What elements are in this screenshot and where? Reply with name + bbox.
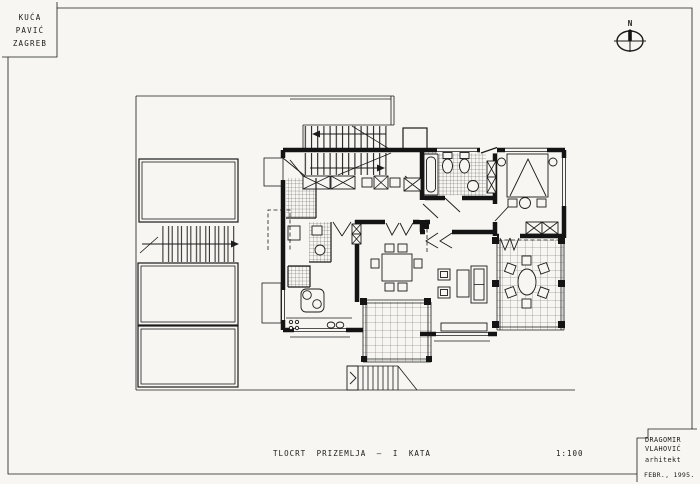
nightstand-left — [498, 158, 506, 166]
architect-name-1: DRAGOMIR — [645, 436, 681, 444]
floor-plan-drawing: KUĆA PAVIĆ ZAGREB DRAGOMIR VLAHOVIĆ arhi… — [0, 0, 700, 484]
architect-date: FEBR., 1995. — [644, 471, 695, 479]
pantry-floor — [288, 266, 310, 287]
architect-name-2: VLAHOVIĆ — [645, 444, 681, 453]
toilet — [460, 159, 470, 173]
drawing-sheet: KUĆA PAVIĆ ZAGREB DRAGOMIR VLAHOVIĆ arhi… — [0, 0, 700, 484]
terrace-table — [518, 269, 536, 295]
coffee-table — [457, 270, 469, 297]
sink — [443, 159, 453, 173]
dining-table — [382, 254, 412, 281]
sideboard — [441, 323, 487, 331]
project-line-1: KUĆA — [19, 13, 42, 22]
paper-background — [0, 0, 700, 484]
compass-needle-icon — [628, 30, 632, 41]
plan-title: TLOCRT PRIZEMLJA — I KATA — [273, 449, 431, 458]
plan-scale: 1:100 — [556, 449, 584, 458]
north-label: N — [628, 19, 633, 28]
stool — [520, 198, 531, 209]
nightstand-right — [549, 158, 557, 166]
project-line-3: ZAGREB — [13, 39, 47, 48]
project-line-2: PAVIĆ — [16, 26, 45, 35]
architect-role: arhitekt — [645, 456, 681, 464]
